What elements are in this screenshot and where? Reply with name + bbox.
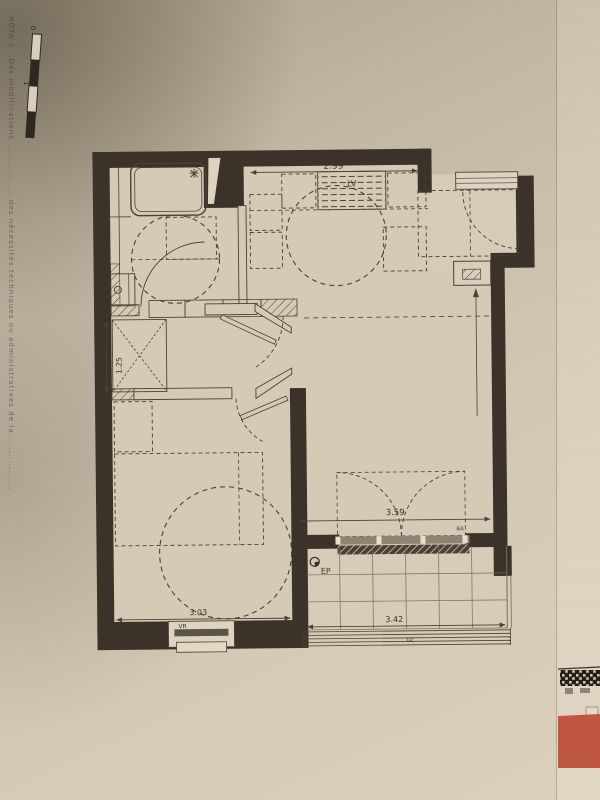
door-sill [337,535,469,544]
window-sill [177,642,227,653]
bathtub-drain-symbol [190,169,199,178]
floor-plan-photo: NOTA 1 : Des modifications .............… [0,0,600,800]
svg-text:3.03: 3.03 [189,608,207,617]
dishwasher-label: LV [347,179,357,189]
svg-text:3.42: 3.42 [385,615,403,624]
svg-text:3.59: 3.59 [386,508,405,518]
svg-text:2.99: 2.99 [323,162,343,172]
hatched-wall-band [560,670,600,686]
underlying-sheet-corner [540,645,600,800]
roller-shutter-label: VR [178,623,186,630]
dishwasher-box [318,171,386,210]
threshold-hatch [338,544,470,554]
floor-plan-drawing: LV 2.99 [0,0,600,800]
railing-tag: GC [406,638,414,644]
window-tag: BA [456,526,464,532]
kitchen-partition-wall [238,206,247,306]
bedroom-window: VR [168,621,234,653]
svg-text:1.25: 1.25 [115,357,124,374]
entry-door-frame [456,172,518,190]
scale-one-label: 1 [22,81,30,86]
scale-zero-label: 0 [29,26,37,31]
rain-pipe-label: EP [321,567,331,576]
scale-bar: 0 1 [0,0,60,160]
red-roof-area [558,714,600,768]
